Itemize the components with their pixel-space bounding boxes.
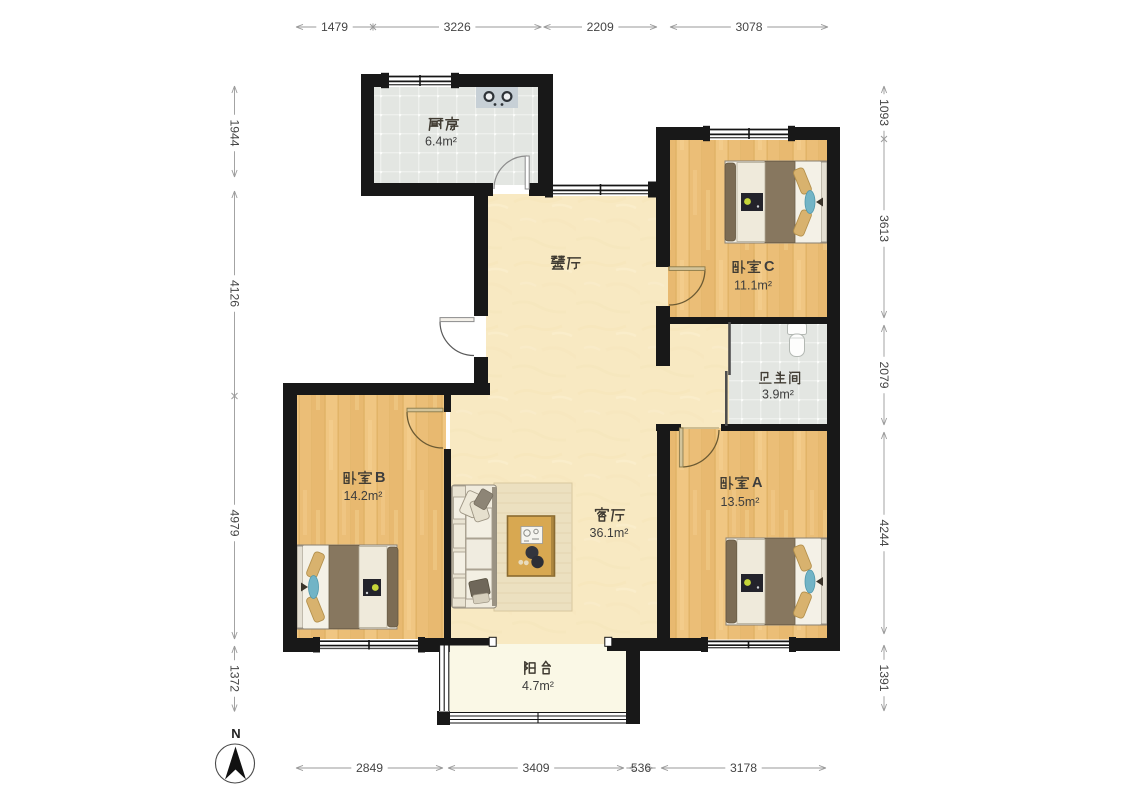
svg-text:4126: 4126 xyxy=(228,280,242,307)
svg-text:C: C xyxy=(764,259,775,275)
svg-text:2209: 2209 xyxy=(587,20,614,34)
svg-text:11.1m²: 11.1m² xyxy=(734,279,772,293)
svg-text:A: A xyxy=(752,475,763,491)
svg-text:1391: 1391 xyxy=(877,664,891,691)
svg-text:4979: 4979 xyxy=(228,509,242,536)
svg-text:3409: 3409 xyxy=(522,761,549,775)
svg-text:4.7m²: 4.7m² xyxy=(522,679,554,693)
svg-text:14.2m²: 14.2m² xyxy=(344,489,383,503)
svg-text:4244: 4244 xyxy=(877,519,891,546)
svg-text:2849: 2849 xyxy=(356,761,383,775)
svg-text:36.1m²: 36.1m² xyxy=(590,526,629,540)
svg-text:3078: 3078 xyxy=(735,20,762,34)
svg-text:3613: 3613 xyxy=(877,215,891,242)
svg-text:1372: 1372 xyxy=(228,665,242,692)
svg-text:3226: 3226 xyxy=(444,20,471,34)
svg-text:3.9m²: 3.9m² xyxy=(762,388,794,402)
svg-text:2079: 2079 xyxy=(877,361,891,388)
svg-text:1093: 1093 xyxy=(877,99,891,126)
svg-text:13.5m²: 13.5m² xyxy=(721,495,760,509)
svg-text:1479: 1479 xyxy=(321,20,348,34)
svg-text:536: 536 xyxy=(631,761,652,775)
svg-text:N: N xyxy=(231,726,240,741)
svg-text:6.4m²: 6.4m² xyxy=(425,135,457,149)
svg-text:1944: 1944 xyxy=(228,119,242,146)
svg-text:3178: 3178 xyxy=(730,761,757,775)
svg-text:B: B xyxy=(375,470,385,486)
